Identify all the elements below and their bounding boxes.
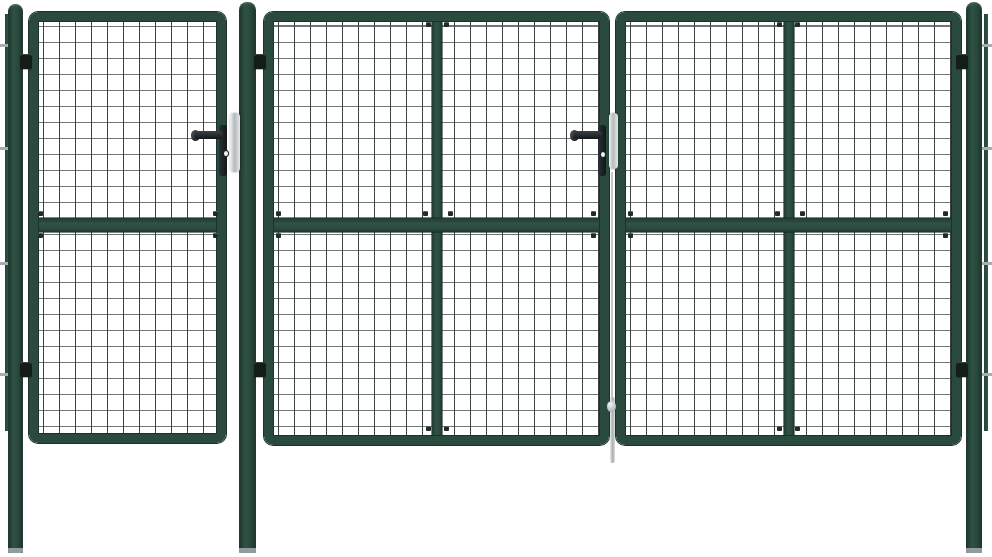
drop-rod-knob bbox=[607, 401, 616, 412]
bolt bbox=[777, 426, 782, 431]
bolt bbox=[426, 22, 431, 27]
bolt bbox=[423, 211, 428, 216]
bolt bbox=[775, 211, 780, 216]
keyhole bbox=[224, 151, 228, 156]
bolt bbox=[628, 211, 633, 216]
keyhole bbox=[601, 152, 605, 157]
gate-frame bbox=[29, 12, 226, 443]
bolt bbox=[591, 233, 596, 238]
bolt bbox=[444, 426, 449, 431]
bolt bbox=[276, 211, 281, 216]
gate-frame bbox=[264, 12, 609, 445]
latch-strike-plate bbox=[230, 113, 240, 172]
bolt bbox=[38, 233, 43, 238]
hinge-top-right-panel bbox=[956, 54, 968, 69]
hinge-bottom-right-panel bbox=[956, 362, 968, 377]
bolt bbox=[800, 211, 805, 216]
hinge-bottom-left-panel bbox=[254, 362, 266, 377]
bolt bbox=[591, 211, 596, 216]
bolt bbox=[276, 233, 281, 238]
bolt bbox=[38, 211, 43, 216]
product-photo-garden-gate bbox=[0, 0, 992, 557]
double-gate-left-panel bbox=[264, 12, 609, 445]
bolt bbox=[213, 233, 218, 238]
bolt bbox=[777, 22, 782, 27]
hinge-bottom-pedestrian bbox=[20, 362, 32, 377]
bolt bbox=[448, 211, 453, 216]
panel-gap-latch-rod bbox=[611, 172, 613, 398]
latch-strike-plate bbox=[609, 113, 618, 169]
bolt bbox=[943, 233, 948, 238]
hinge-top-pedestrian bbox=[20, 54, 32, 69]
bolt bbox=[213, 211, 218, 216]
lever-handle bbox=[194, 131, 223, 139]
bolt bbox=[795, 426, 800, 431]
lever-handle bbox=[573, 131, 602, 139]
bolt bbox=[795, 22, 800, 27]
wall-anchor-bar-right bbox=[984, 14, 988, 431]
fence-post-middle bbox=[239, 2, 256, 553]
pedestrian-gate bbox=[29, 12, 226, 443]
double-gate-right-panel bbox=[616, 12, 961, 445]
fence-post-left bbox=[8, 4, 23, 553]
bolt bbox=[628, 233, 633, 238]
bolt bbox=[943, 211, 948, 216]
fence-post-right bbox=[966, 2, 982, 553]
gate-frame bbox=[616, 12, 961, 445]
bolt bbox=[444, 22, 449, 27]
bolt bbox=[426, 426, 431, 431]
hinge-top-left-panel bbox=[254, 54, 266, 69]
